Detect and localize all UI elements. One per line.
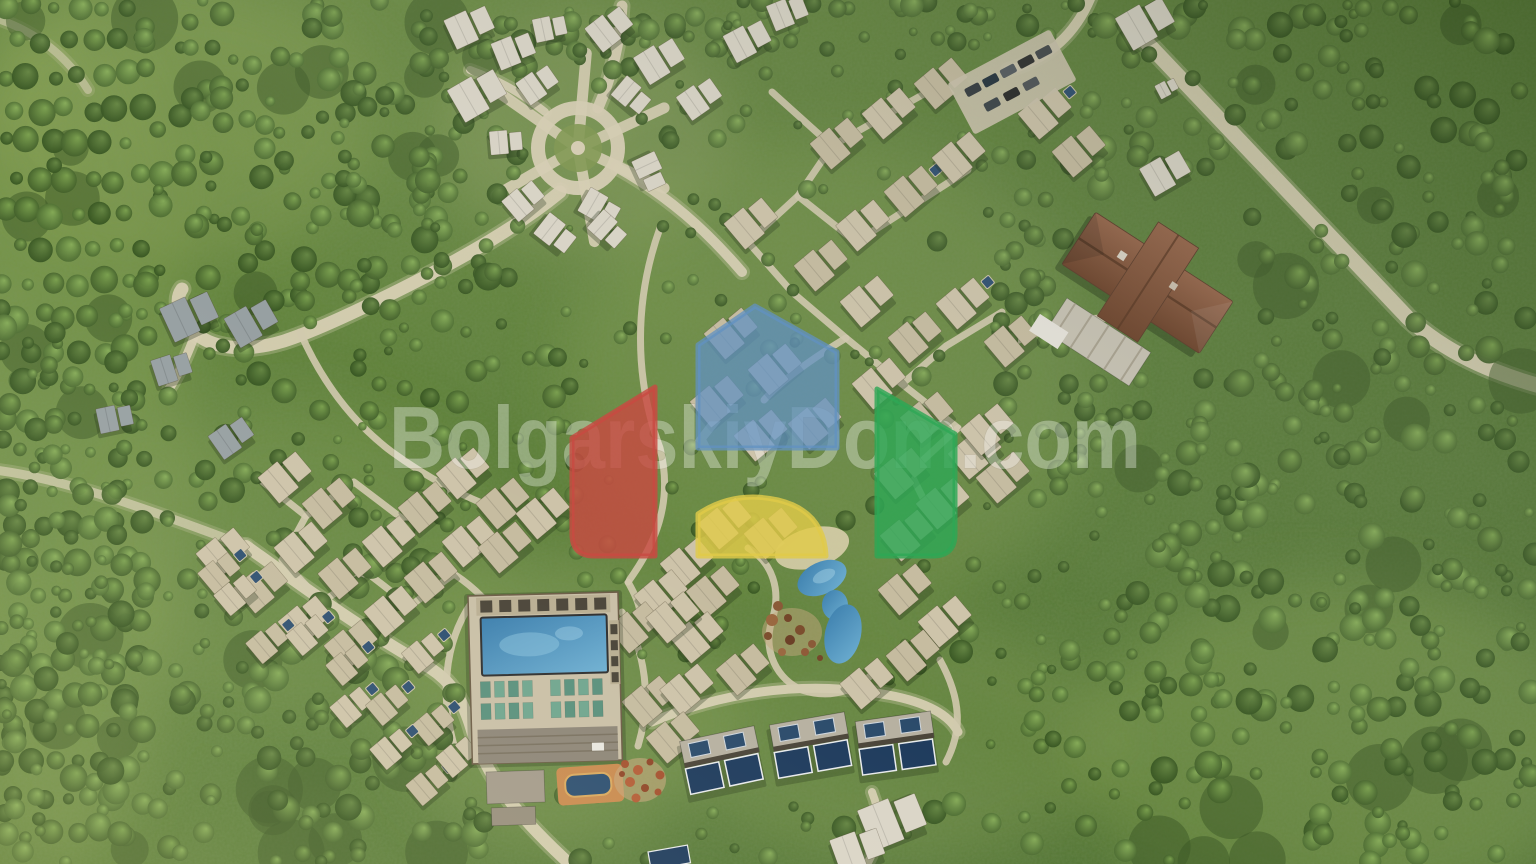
scene-svg: BolgarskiyDom.com	[0, 0, 1536, 864]
aerial-render: BolgarskiyDom.com	[0, 0, 1536, 864]
